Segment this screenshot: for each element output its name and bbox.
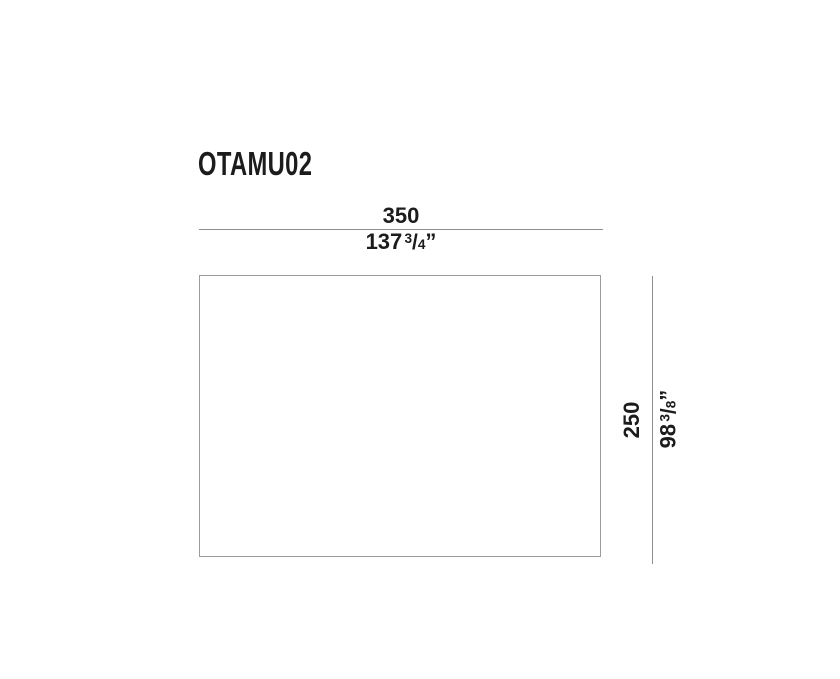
height-inch-whole: 98: [656, 424, 681, 448]
height-cm-label: 250: [621, 402, 643, 439]
width-inch-whole: 137: [366, 229, 403, 254]
width-inches-label: 1373/4”: [199, 231, 603, 254]
width-cm-label: 350: [199, 205, 603, 227]
product-code-title: OTAMU02: [198, 147, 312, 180]
width-frac-numerator: 3: [404, 231, 412, 246]
width-inch-mark: ”: [425, 229, 436, 254]
height-frac-slash: /: [658, 408, 681, 414]
dimension-drawing: OTAMU02 350 1373/4” 250 983/8”: [0, 0, 840, 679]
height-inch-mark: ”: [656, 390, 681, 401]
height-frac-numerator: 3: [657, 414, 672, 422]
product-outline-rect: [199, 275, 601, 557]
height-frac-denominator: 8: [664, 401, 679, 409]
height-inches-label: 983/8”: [658, 390, 681, 449]
height-dimension-line: [652, 276, 653, 564]
